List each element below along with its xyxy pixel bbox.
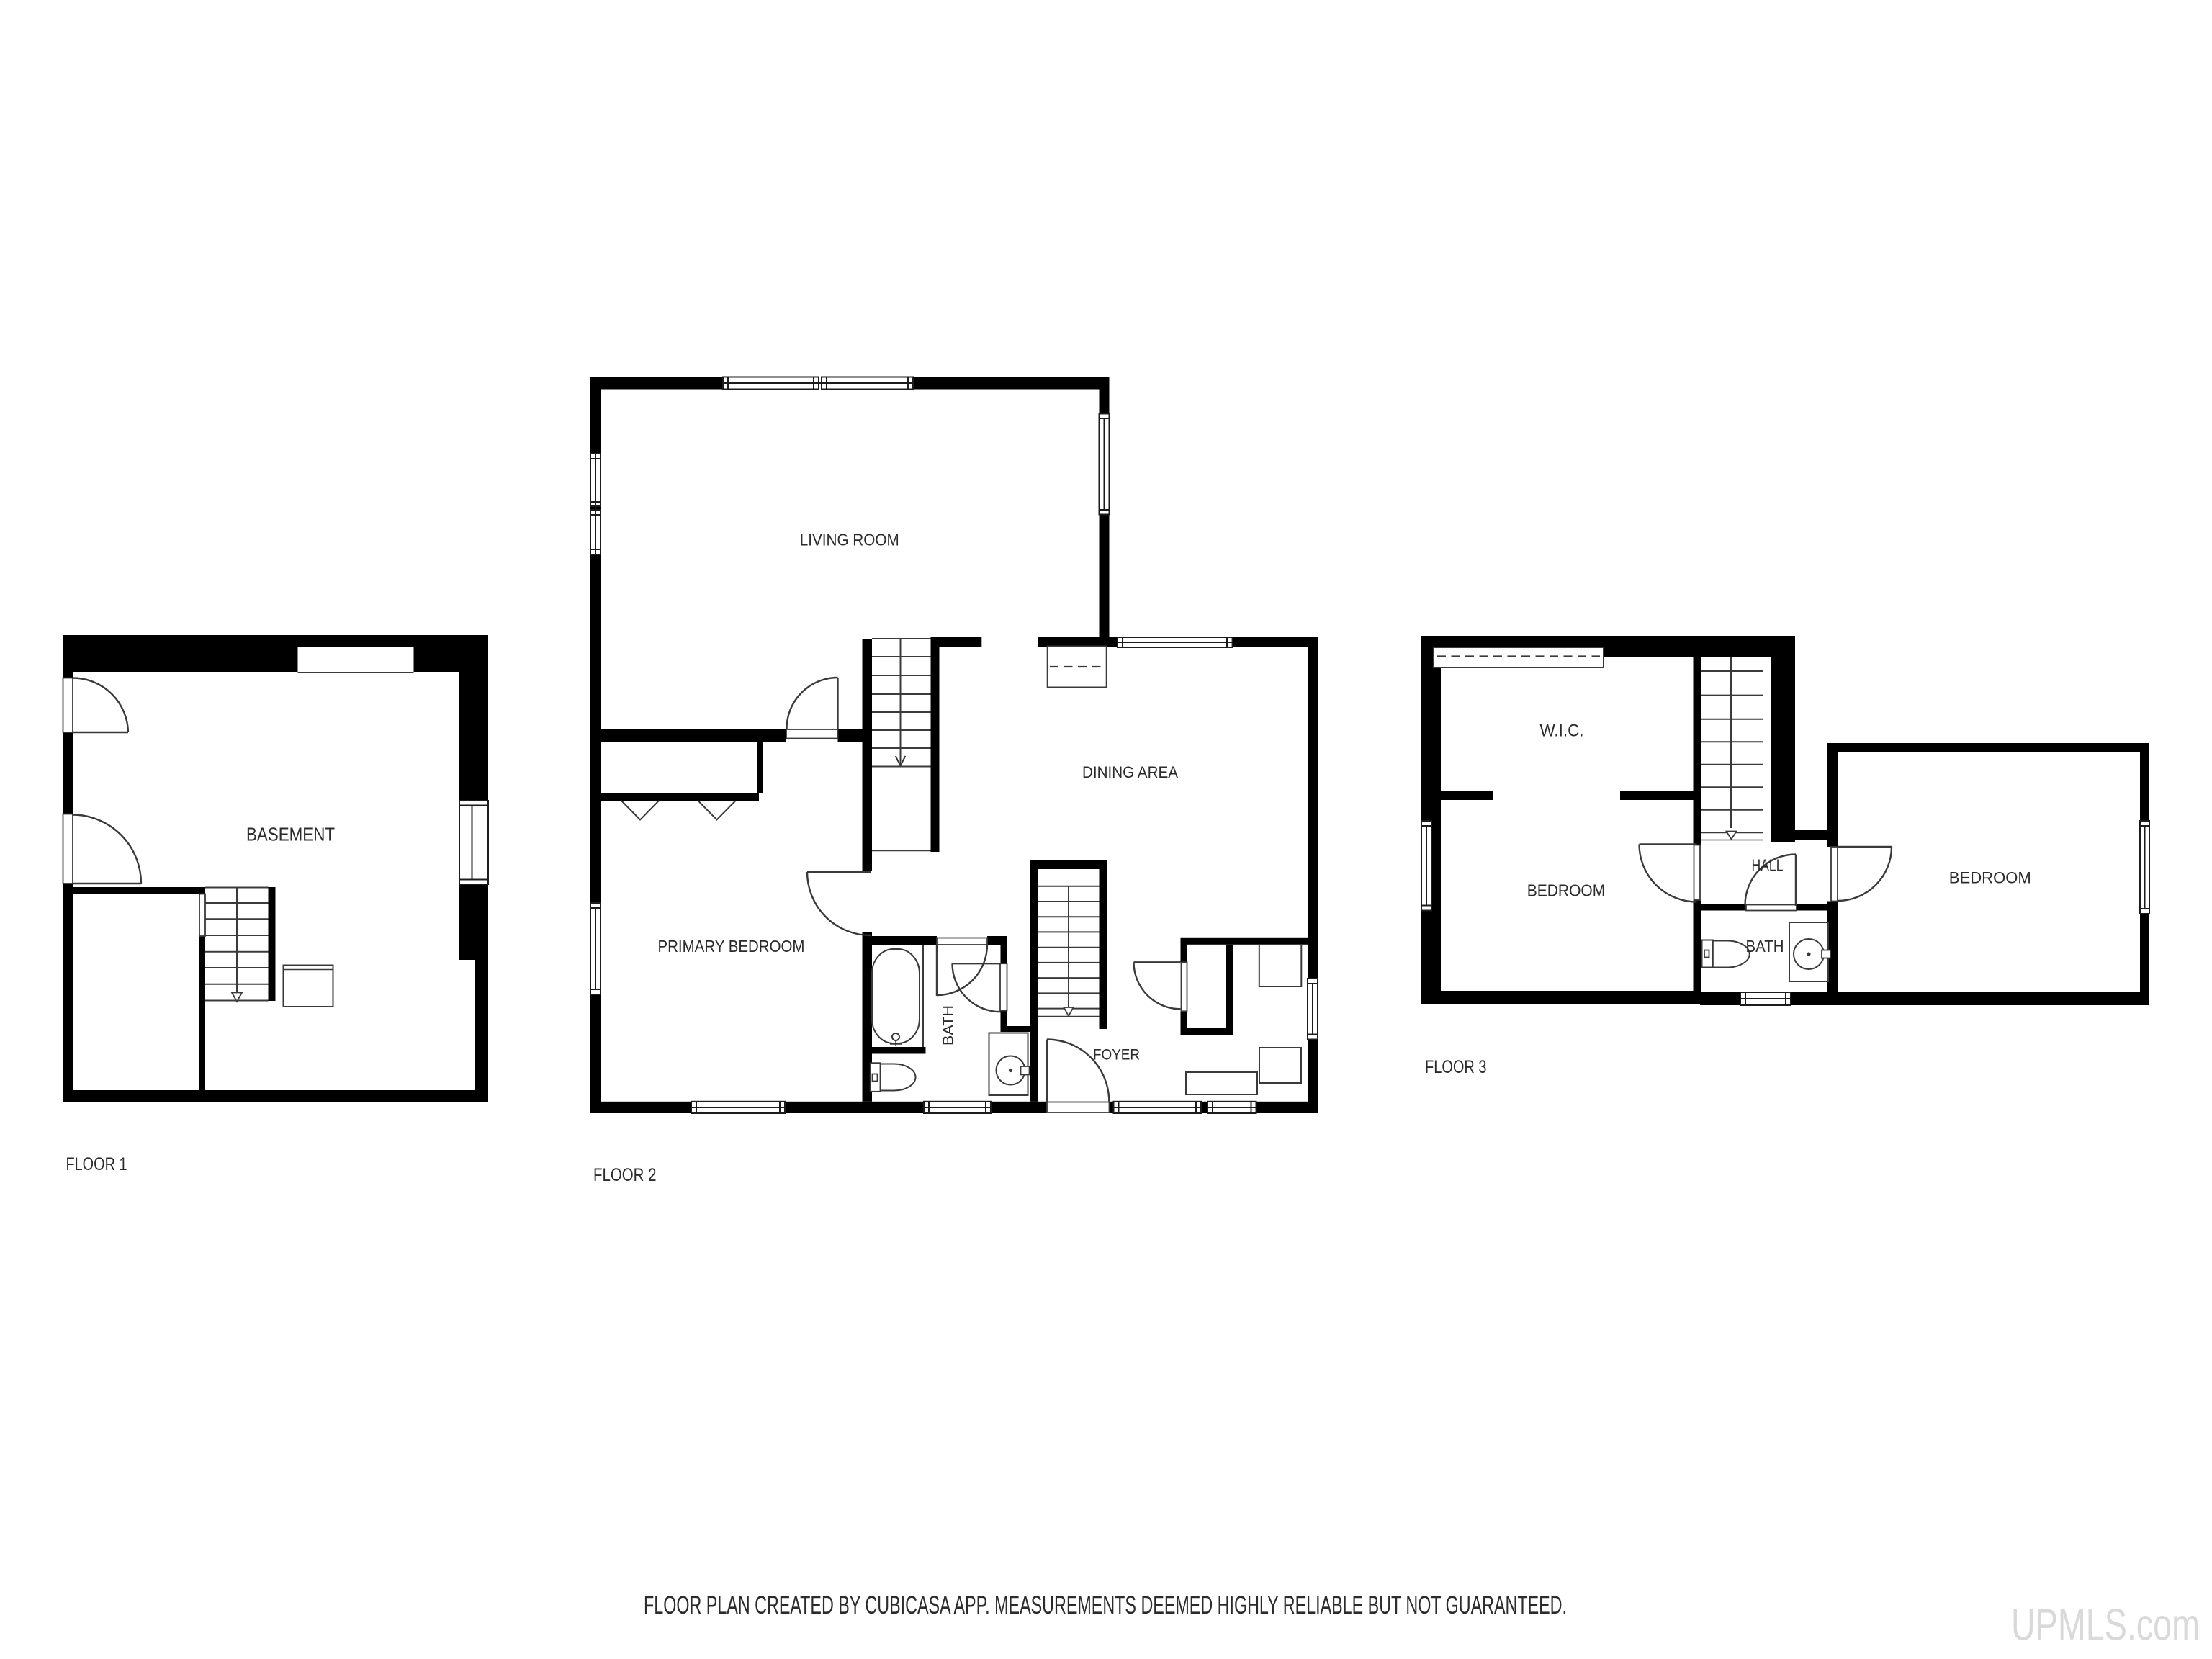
svg-text:FLOOR 2: FLOOR 2 xyxy=(593,1165,657,1185)
svg-text:FOYER: FOYER xyxy=(1093,1046,1140,1063)
svg-text:PRIMARY BEDROOM: PRIMARY BEDROOM xyxy=(658,937,805,956)
svg-text:FLOOR 1: FLOOR 1 xyxy=(66,1154,127,1174)
svg-text:UPMLS.com: UPMLS.com xyxy=(2011,1601,2200,1650)
svg-text:FLOOR PLAN CREATED BY CUBICASA: FLOOR PLAN CREATED BY CUBICASA APP. MEAS… xyxy=(644,1591,1567,1619)
svg-text:LIVING ROOM: LIVING ROOM xyxy=(800,531,899,549)
svg-text:FLOOR 3: FLOOR 3 xyxy=(1425,1057,1487,1077)
svg-text:BEDROOM: BEDROOM xyxy=(1527,881,1606,900)
svg-text:BATH: BATH xyxy=(940,1005,957,1046)
svg-text:BEDROOM: BEDROOM xyxy=(1949,869,2031,887)
svg-text:HALL: HALL xyxy=(1752,856,1784,875)
svg-text:BATH: BATH xyxy=(1746,937,1784,956)
svg-text:BASEMENT: BASEMENT xyxy=(246,824,335,845)
svg-text:W.I.C.: W.I.C. xyxy=(1540,721,1584,741)
svg-text:DINING AREA: DINING AREA xyxy=(1082,763,1178,781)
